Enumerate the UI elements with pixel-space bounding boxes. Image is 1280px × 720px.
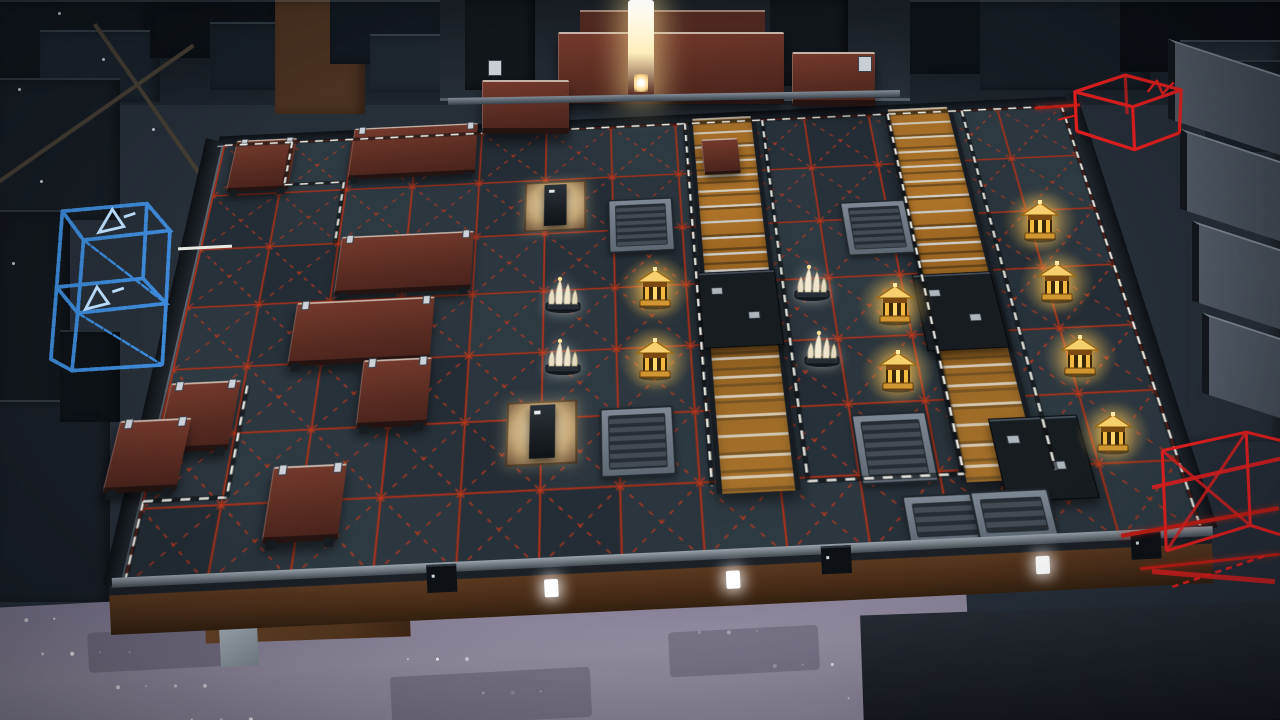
gold-treasure-marker[interactable] xyxy=(872,282,918,326)
crystal-cluster-icon xyxy=(789,260,835,302)
game-stage xyxy=(0,0,1280,720)
gold-treasure-icon xyxy=(872,282,918,326)
gold-treasure-icon xyxy=(1017,199,1063,243)
crystal-cluster-marker[interactable] xyxy=(799,326,845,368)
gold-treasure-marker[interactable] xyxy=(1090,411,1136,455)
gold-treasure-marker[interactable] xyxy=(1017,199,1063,243)
ally-entry-box[interactable] xyxy=(24,192,192,387)
enemy-spawn-wireframe-icon xyxy=(1152,425,1280,595)
enemy-spawn-box-bottom-right[interactable] xyxy=(1152,425,1280,595)
crystal-cluster-marker[interactable] xyxy=(540,272,586,314)
ally-entry-wireframe-icon xyxy=(24,192,192,387)
gold-treasure-icon xyxy=(1090,411,1136,455)
gold-treasure-marker[interactable] xyxy=(875,349,921,393)
crystal-cluster-marker[interactable] xyxy=(789,260,835,302)
gold-treasure-marker[interactable] xyxy=(632,266,678,310)
gold-treasure-icon xyxy=(1034,260,1080,304)
crystal-cluster-icon xyxy=(540,272,586,314)
gold-treasure-marker[interactable] xyxy=(1034,260,1080,304)
enemy-spawn-wireframe-icon xyxy=(1058,62,1198,159)
enemy-spawn-box-top-right[interactable] xyxy=(1058,62,1198,159)
gold-treasure-marker[interactable] xyxy=(632,337,678,381)
gold-treasure-icon xyxy=(1057,334,1103,378)
crystal-cluster-icon xyxy=(799,326,845,368)
gold-treasure-icon xyxy=(632,266,678,310)
gold-treasure-marker[interactable] xyxy=(1057,334,1103,378)
crystal-cluster-icon xyxy=(540,334,586,376)
gold-treasure-icon xyxy=(875,349,921,393)
crystal-cluster-marker[interactable] xyxy=(540,334,586,376)
gold-treasure-icon xyxy=(632,337,678,381)
